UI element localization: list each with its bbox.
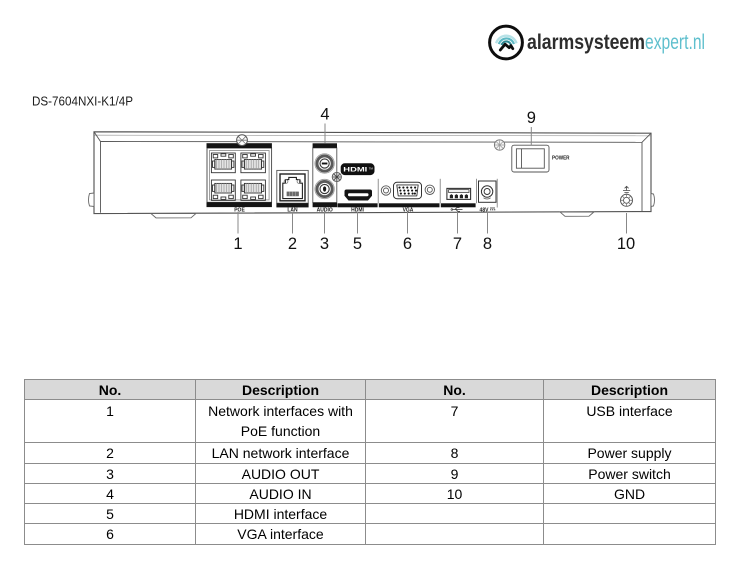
- svg-text:9: 9: [527, 109, 536, 127]
- svg-text:HDMI: HDMI: [343, 167, 367, 174]
- svg-text:POWER: POWER: [552, 156, 570, 162]
- svg-text:10: 10: [617, 235, 635, 253]
- svg-text:POE: POE: [234, 207, 245, 213]
- svg-text:1: 1: [233, 235, 242, 253]
- svg-text:DS-7604NXI-K1/4P: DS-7604NXI-K1/4P: [32, 94, 133, 109]
- svg-text:6: 6: [403, 235, 412, 253]
- svg-text:expert.nl: expert.nl: [645, 30, 705, 54]
- svg-text:5: 5: [353, 235, 362, 253]
- svg-text:8: 8: [483, 235, 492, 253]
- svg-text:TM: TM: [369, 167, 374, 171]
- svg-text:3: 3: [320, 235, 329, 253]
- svg-text:VGA: VGA: [403, 207, 414, 213]
- svg-text:4: 4: [320, 106, 329, 124]
- svg-text:2: 2: [288, 235, 297, 253]
- svg-text:alarmsysteem: alarmsysteem: [527, 30, 645, 54]
- svg-text:7: 7: [453, 235, 462, 253]
